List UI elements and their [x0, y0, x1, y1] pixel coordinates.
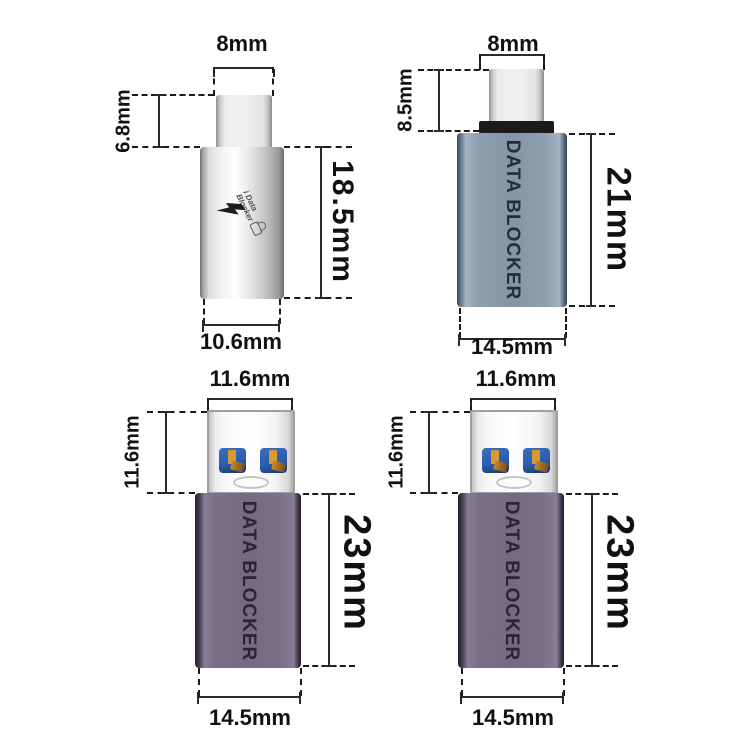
dim-extension-line	[147, 411, 207, 413]
dim-width-top-label: 8mm	[216, 31, 267, 57]
dim-bracket-line	[208, 398, 292, 400]
dim-width-bottom-label: 10.6mm	[200, 329, 282, 355]
dim-measure-line	[165, 412, 167, 493]
dim-extension-line	[132, 94, 214, 96]
usb-a-plug	[207, 410, 295, 494]
dim-measure-line	[328, 494, 330, 666]
dim-extension-line	[132, 146, 200, 148]
data-blocker-logo: i DataBlocker	[215, 190, 268, 247]
oval-hole	[233, 476, 269, 489]
body-label: DATA BLOCKER	[501, 140, 523, 300]
dim-bracket-line	[471, 398, 555, 400]
dim-width-bottom-label: 14.5mm	[209, 705, 291, 731]
usb-contact-window	[523, 448, 550, 473]
usb-a-plug	[470, 410, 558, 494]
dim-measure-line	[198, 696, 300, 698]
oval-hole	[496, 476, 532, 489]
dim-bracket-line	[480, 54, 544, 56]
dim-width-bottom-label: 14.5mm	[471, 334, 553, 360]
dim-measure-line	[428, 412, 430, 493]
dim-measure-line	[438, 70, 440, 131]
dim-plug-height-label: 11.6mm	[122, 415, 145, 488]
dim-width-bottom-label: 14.5mm	[472, 705, 554, 731]
dim-extension-line	[147, 492, 195, 494]
dim-plug-height-label: 11.6mm	[386, 415, 409, 488]
lock-icon	[249, 219, 268, 237]
dim-extension-line	[543, 54, 545, 70]
dim-measure-line	[320, 147, 322, 298]
usb-c-plug	[216, 95, 272, 148]
dim-measure-line	[203, 324, 279, 326]
dim-plug-height-label: 6.8mm	[113, 89, 136, 152]
adapter-body: DATA BLOCKER	[457, 133, 567, 307]
adapter-body: DATA BLOCKER	[458, 493, 564, 668]
dim-body-height-label: 23mm	[335, 514, 378, 632]
product-dimension-diagram: 8mm i DataBlocker 6.8mm	[0, 0, 750, 750]
dim-body-height-label: 23mm	[598, 514, 641, 632]
adapter-body: DATA BLOCKER	[195, 493, 301, 668]
dim-extension-line	[213, 67, 215, 96]
dim-extension-line	[272, 67, 274, 96]
dim-body-height-label: 21mm	[599, 167, 638, 273]
dim-bracket-line	[214, 67, 274, 69]
dim-measure-line	[461, 696, 563, 698]
usb-contact-window	[219, 448, 246, 473]
body-label: DATA BLOCKER	[500, 500, 522, 660]
usb-contact-window	[260, 448, 287, 473]
usb-contact-window	[482, 448, 509, 473]
dim-extension-line	[410, 411, 470, 413]
dim-plug-height-label: 8.5mm	[395, 68, 418, 131]
adapter-body: i DataBlocker	[200, 147, 284, 299]
dim-measure-line	[158, 95, 160, 147]
usb-c-plug	[489, 69, 544, 123]
dim-measure-line	[591, 494, 593, 666]
dim-extension-line	[479, 54, 481, 70]
body-label: DATA BLOCKER	[237, 500, 259, 660]
dim-width-top-label: 11.6mm	[210, 366, 291, 392]
dim-width-top-label: 11.6mm	[476, 366, 557, 392]
dim-body-height-label: 18.5mm	[325, 160, 359, 284]
dim-measure-line	[590, 134, 592, 306]
dim-extension-line	[418, 130, 479, 132]
dim-extension-line	[410, 492, 458, 494]
dim-extension-line	[418, 69, 489, 71]
